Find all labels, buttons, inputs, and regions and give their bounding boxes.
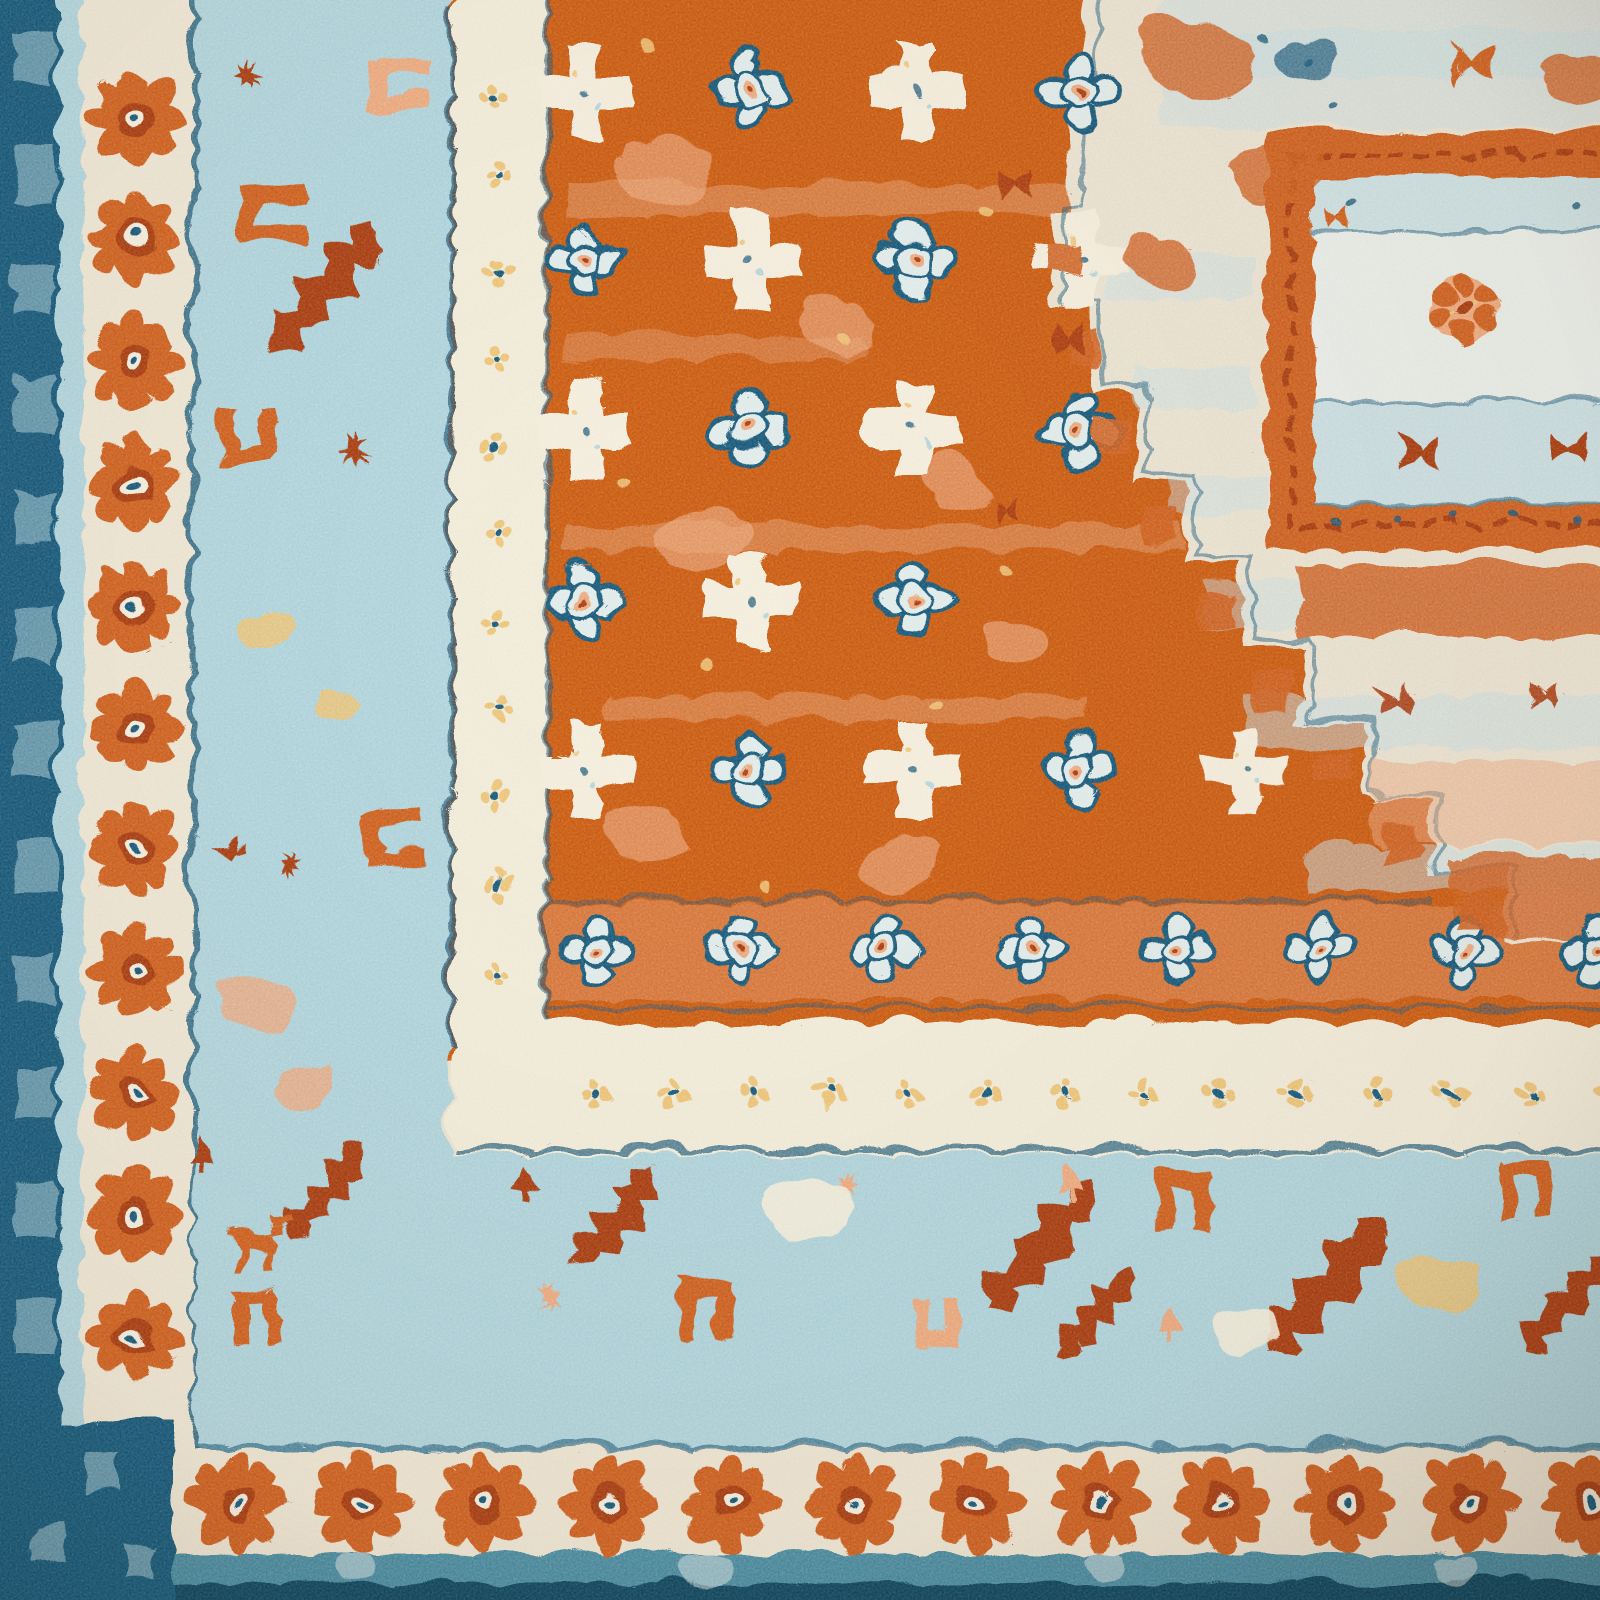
- lighting-vignette: [0, 0, 1600, 1600]
- rug-canvas: Close-up corner of an oriental area rug: [0, 0, 1600, 1600]
- rug-photo: Close-up corner of an oriental area rug: [0, 0, 1600, 1600]
